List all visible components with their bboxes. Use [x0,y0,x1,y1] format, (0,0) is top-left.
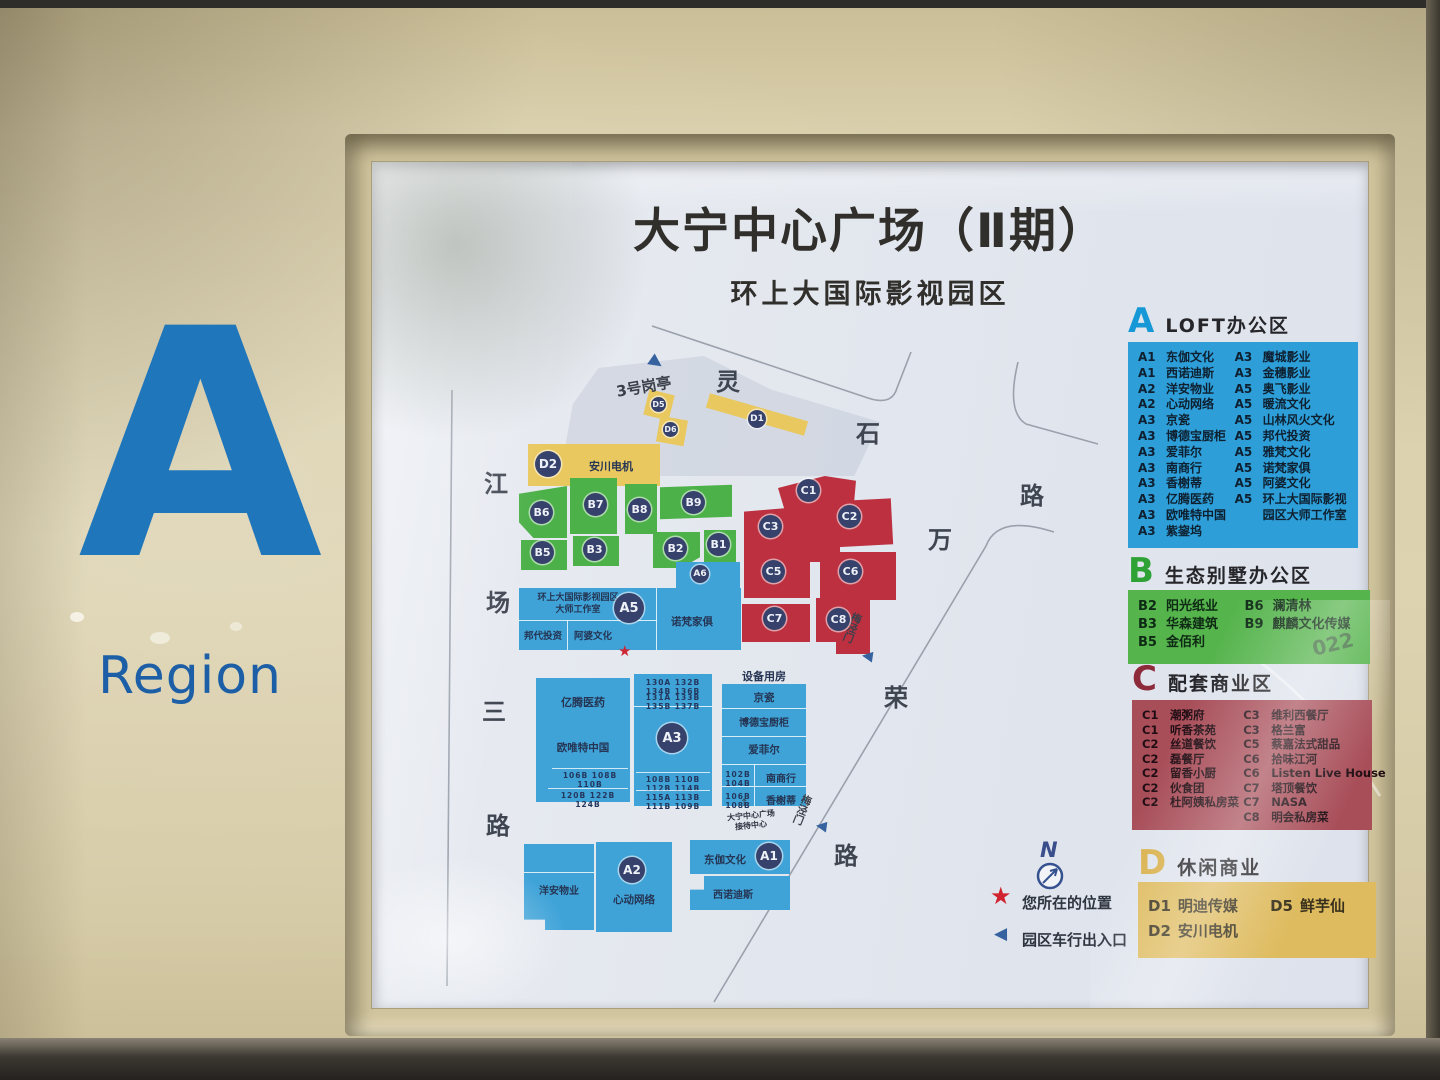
legend-entry: A3金穗影业 [1235,366,1348,382]
badge-a6: A6 [691,565,709,583]
legend-entry: A3博德宝厨柜 [1138,429,1235,445]
legend-entry: A3欧唯特中国 [1138,508,1235,524]
street-wanrong-3: 路 [834,836,858,871]
badge-d1: D1 [748,410,766,428]
region-word: Region [70,646,310,706]
entrance-triangle-icon: ◀ [861,647,874,664]
legend-entry: A5雅梵文化 [1235,445,1348,461]
a3-left-room-numbers: 106B 108B 110B [552,768,628,789]
legend-d-letter: D [1138,846,1166,880]
legend-b-title: 生态别墅办公区 [1165,561,1312,588]
badge-a2: A2 [619,857,645,883]
legend-entry: A2洋安物业 [1138,382,1235,398]
badge-b7: B7 [584,493,607,516]
legend-d-right-column: D5鲜芋仙 [1270,894,1366,950]
legend-entry: B5金佰利 [1138,634,1245,652]
a3-tenant-yiteng: 亿腾医药 [536,694,630,710]
legend-entry: D2安川电机 [1148,919,1270,944]
badge-a5: A5 [614,593,644,623]
legend-entry: C2伙食团 [1142,781,1243,796]
photo-edge-bottom [0,1038,1440,1080]
a3-right-room-numbers: 102B 104B [722,768,754,788]
legend-c-right-column: C3维利西餐厅C3格兰富C5蔡嘉法式甜品C6拾味江河C6Listen Live … [1243,708,1386,822]
legend-d-header: D 休闲商业 [1138,846,1261,880]
d2-tenant-label: 安川电机 [566,458,656,474]
paint-chip [150,632,170,644]
legend-entry: A5诺梵家俱 [1235,461,1348,477]
legend-entry: A3紫鋆坞 [1138,524,1235,540]
legend-a-right-column: A3魔城影业A3金穗影业A5奥飞影业A5暖流文化A5山林风火文化A5邦代投资A5… [1235,350,1348,540]
legend-entry: A5环上大国际影视 [1235,492,1348,508]
you-are-here-star-icon: ★ [618,642,631,660]
badge-b5: B5 [531,541,554,564]
legend-entry: C2丝道餐饮 [1142,737,1243,752]
block-divider [722,764,806,765]
key-vehicle-entrance-label: 园区车行出入口 [1022,929,1127,950]
region-letter: A [78,288,298,604]
a5-tenant-bangdai: 邦代投资 [520,628,566,642]
legend-entry: C6拾味江河 [1243,752,1386,767]
legend-a-title: LOFT办公区 [1165,311,1290,338]
legend-entry: A5阿婆文化 [1235,476,1348,492]
legend-entry: A2心动网络 [1138,397,1235,413]
legend-b-left-column: B2阳光纸业B3华森建筑B5金佰利 [1138,598,1245,656]
badge-c7: C7 [763,607,786,630]
block-divider [524,872,594,873]
street-lingshi-3: 路 [1020,476,1044,511]
legend-entry: C2杜阿姨私房菜 [1142,795,1243,810]
legend-a-letter: A [1128,304,1154,338]
legend-entry: C5蔡嘉法式甜品 [1243,737,1386,752]
legend-entry: C3维利西餐厅 [1243,708,1386,723]
badge-c2: C2 [838,505,861,528]
street-jiangchang-4: 路 [486,806,510,841]
badge-c3: C3 [759,515,782,538]
a3-left-room-numbers: 120B 122B 124B [548,788,628,809]
legend-entry: C8明会私房菜 [1243,810,1386,825]
legend-a-left-column: A1东伽文化A1西诺迪斯A2洋安物业A2心动网络A3京瓷A3博德宝厨柜A3爱菲尔… [1138,350,1235,540]
street-wanrong-2: 荣 [884,678,908,713]
legend-entry: A5邦代投资 [1235,429,1348,445]
legend-entry: C3格兰富 [1243,723,1386,738]
a5-tenant-apo: 阿婆文化 [570,628,616,642]
legend-d-title: 休闲商业 [1177,853,1261,880]
legend-d-left-column: D1明迪传媒D2安川电机 [1148,894,1270,950]
badge-b6: B6 [530,501,553,524]
legend-b-letter: B [1128,554,1154,588]
compass-north-label: N [1040,838,1058,862]
legend-entry: C1听香茶苑 [1142,723,1243,738]
badge-d2: D2 [535,451,561,477]
legend-entry: A3爱菲尔 [1138,445,1235,461]
street-jiangchang-2: 场 [486,583,510,618]
legend-entry: A3魔城影业 [1235,350,1348,366]
legend-entry: A3京瓷 [1138,413,1235,429]
photo-edge-right [1426,0,1440,1080]
legend-entry: A3亿腾医药 [1138,492,1235,508]
a3-tenant-bodebao: 博德宝厨柜 [722,714,806,729]
block-divider [722,736,806,737]
key-star-icon: ★ [990,882,1012,910]
legend-entry: A3南商行 [1138,461,1235,477]
legend-c-title: 配套商业区 [1168,669,1273,696]
a3-mid-room-numbers: 131A 133B 135B 137B [636,691,710,711]
legend-entry: D5鲜芋仙 [1270,894,1366,919]
badge-d6: D6 [663,422,678,437]
legend-a-header: A LOFT办公区 [1128,304,1290,338]
a2-tenant-yangan: 洋安物业 [524,882,594,897]
block-divider [656,588,657,650]
legend-d-panel: D1明迪传媒D2安川电机 D5鲜芋仙 [1138,882,1376,958]
legend-entry: A3香榭蒂 [1138,476,1235,492]
legend-c-header: C 配套商业区 [1132,662,1273,696]
legend-entry: A1东伽文化 [1138,350,1235,366]
badge-b2: B2 [664,537,687,560]
a3-tenant-nanshanghang: 南商行 [756,770,806,785]
a3-mid-room-numbers: 115A 113B 111B 109B [636,790,710,811]
a1-tenant-dongjia: 东伽文化 [692,852,758,867]
board-title: 大宁中心广场（Ⅱ期） [470,192,1270,261]
a5-tenant-nuofan: 诺梵家俱 [664,614,720,629]
block-divider [754,764,755,806]
equipment-room-label: 设备用房 [722,668,806,684]
legend-entry: A5暖流文化 [1235,397,1348,413]
legend-c-letter: C [1132,662,1157,696]
legend-entry: B6澜清林 [1245,598,1360,616]
badge-b3: B3 [583,538,606,561]
a3-right-room-numbers: 106B 108B [722,790,754,810]
legend-entry: C7塔顶餐饮 [1243,781,1386,796]
badge-c8: C8 [827,608,850,631]
directory-sign-photo: A Region 大宁中心广场（Ⅱ期） 环上大国际影视园区 江 场 三 路 灵 … [0,0,1440,1080]
legend-b-header: B 生态别墅办公区 [1128,554,1312,588]
legend-entry: A1西诺迪斯 [1138,366,1235,382]
a3-tenant-xiangxiedi: 香榭蒂 [756,792,806,807]
legend-entry: C7NASA [1243,795,1386,810]
legend-entry: C6Listen Live House [1243,766,1386,781]
legend-entry: A5奥飞影业 [1235,382,1348,398]
a3-tenant-ouweite: 欧唯特中国 [536,740,630,755]
badge-c5: C5 [762,560,785,583]
street-lingshi-2: 石 [856,414,880,449]
block-divider [567,620,568,650]
a1-tenant-xinuodisi: 西诺迪斯 [698,886,768,901]
badge-c1: C1 [797,479,820,502]
legend-entry: D1明迪传媒 [1148,894,1270,919]
legend-c-panel: C1潮粥府C1听香茶苑C2丝道餐饮C2磊餐厅C2留香小厨C2伙食团C2杜阿姨私房… [1132,700,1372,830]
a3-tenant-jingci: 京瓷 [722,690,806,705]
legend-a-panel: A1东伽文化A1西诺迪斯A2洋安物业A2心动网络A3京瓷A3博德宝厨柜A3爱菲尔… [1128,342,1358,548]
badge-b1: B1 [707,533,730,556]
street-jiangchang-1: 江 [484,464,508,499]
legend-entry: B2阳光纸业 [1138,598,1245,616]
badge-c6: C6 [839,560,862,583]
block-divider [722,708,806,709]
c2-block [825,498,893,547]
street-jiangchang-3: 三 [482,692,506,727]
badge-a3: A3 [657,723,687,753]
paint-chip [230,622,242,631]
street-lingshi-1: 灵 [716,362,740,397]
badge-a1: A1 [756,843,782,869]
a3-tenant-aifeier: 爱菲尔 [722,742,806,757]
legend-entry: C2留香小厨 [1142,766,1243,781]
legend-entry: C1潮粥府 [1142,708,1243,723]
badge-b8: B8 [628,498,651,521]
legend-entry: A5山林风火文化 [1235,413,1348,429]
legend-entry: C2磊餐厅 [1142,752,1243,767]
paint-chip [70,612,84,622]
entrance-triangle-icon: ◀ [815,817,828,834]
legend-entry: 园区大师工作室 [1235,508,1348,524]
a2-tenant-xindong: 心动网络 [596,892,672,907]
street-wanrong-1: 万 [928,520,952,555]
legend-c-left-column: C1潮粥府C1听香茶苑C2丝道餐饮C2磊餐厅C2留香小厨C2伙食团C2杜阿姨私房… [1142,708,1243,822]
key-entrance-triangle-icon: ◀ [994,924,1007,944]
badge-d5: D5 [651,397,666,412]
badge-b9: B9 [682,491,705,514]
key-you-are-here-label: 您所在的位置 [1022,892,1112,913]
reception-arrow-icon: ↑ [740,798,748,809]
a2-block [596,842,672,932]
photo-edge-top [0,0,1440,8]
legend-entry: B3华森建筑 [1138,616,1245,634]
